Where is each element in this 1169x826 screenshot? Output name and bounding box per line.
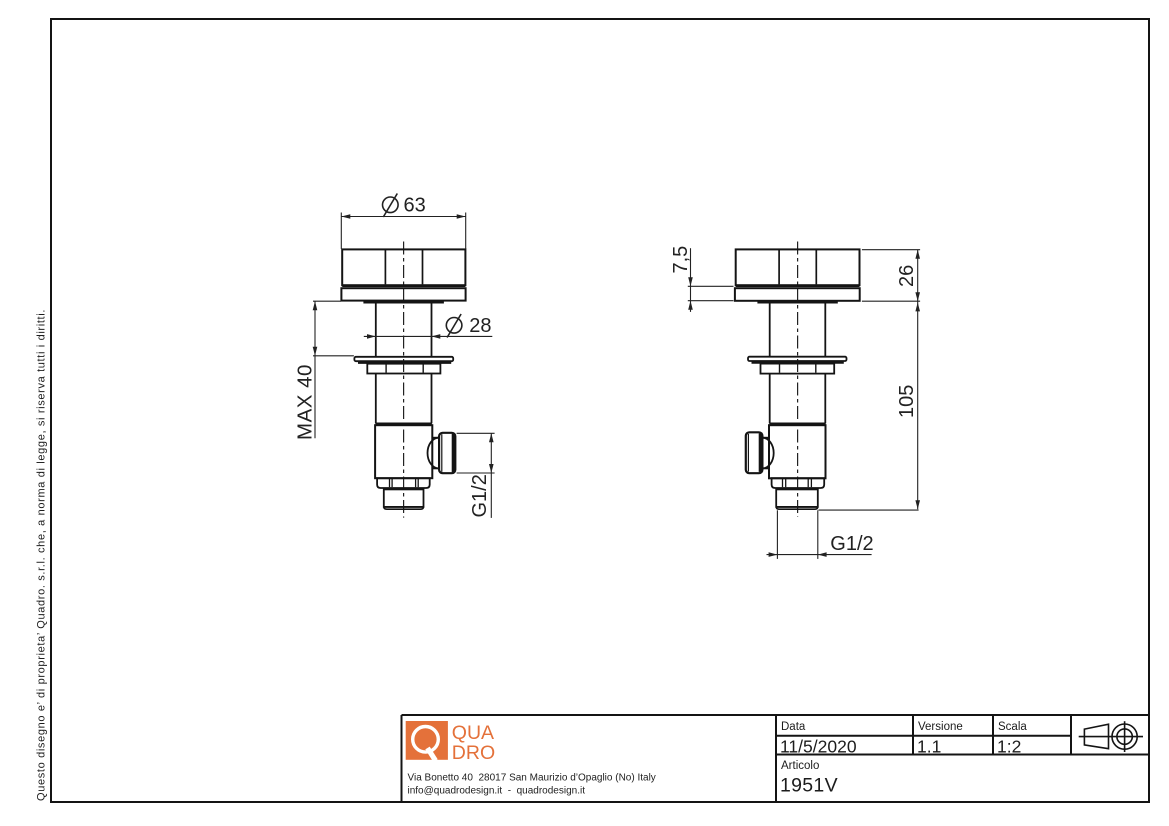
- svg-text:1.1: 1.1: [917, 736, 941, 756]
- svg-text:G1/2: G1/2: [469, 474, 491, 517]
- svg-text:QUA: QUA: [452, 722, 494, 744]
- svg-text:Questo disegno e’ di proprieta: Questo disegno e’ di proprieta’ Quadro. …: [36, 309, 48, 801]
- svg-text:DRO: DRO: [452, 742, 495, 764]
- svg-text:63: 63: [404, 195, 426, 217]
- svg-text:MAX 40: MAX 40: [294, 364, 317, 440]
- svg-text:info@quadrodesign.it - quadr: info@quadrodesign.it - quadrodesign.it: [408, 786, 586, 797]
- svg-text:1951V: 1951V: [780, 774, 838, 796]
- svg-text:7,5: 7,5: [670, 246, 692, 274]
- svg-text:105: 105: [896, 385, 918, 418]
- svg-text:26: 26: [896, 265, 918, 287]
- svg-text:1:2: 1:2: [997, 736, 1021, 756]
- svg-text:Via Bonetto 40 28017 San Maur: Via Bonetto 40 28017 San Maurizio d’Opag…: [408, 773, 656, 784]
- svg-text:Versione: Versione: [918, 721, 963, 733]
- svg-text:G1/2: G1/2: [830, 533, 873, 555]
- svg-text:Scala: Scala: [998, 721, 1027, 733]
- svg-text:Data: Data: [781, 721, 806, 733]
- svg-text:Articolo: Articolo: [781, 760, 819, 772]
- svg-text:28: 28: [469, 315, 491, 337]
- svg-text:11/5/2020: 11/5/2020: [780, 736, 857, 756]
